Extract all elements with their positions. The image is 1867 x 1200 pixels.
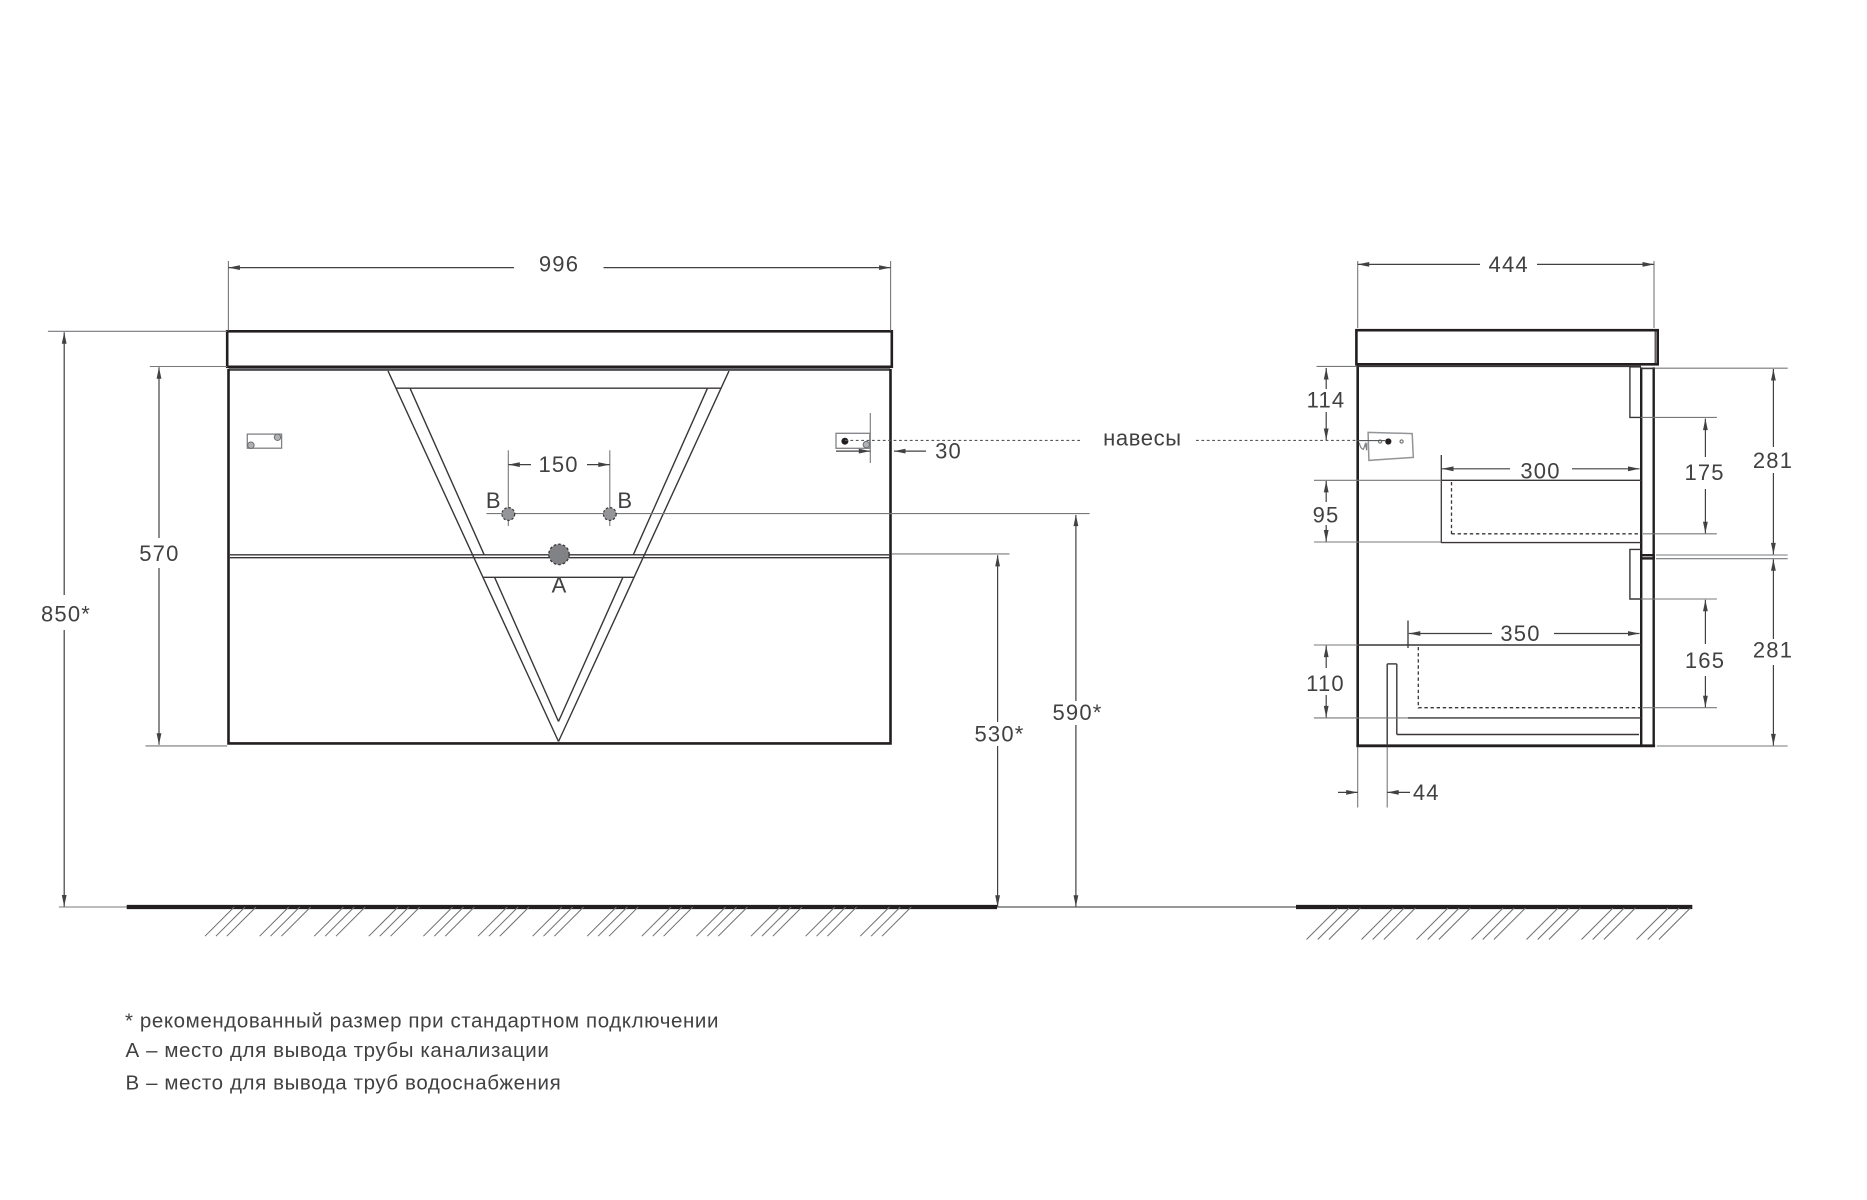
svg-text:150: 150 xyxy=(538,452,578,477)
svg-text:44: 44 xyxy=(1413,780,1440,805)
svg-text:* рекомендованный размер при с: * рекомендованный размер при стандартном… xyxy=(125,1010,719,1033)
svg-text:А – место для вывода трубы кан: А – место для вывода трубы канализации xyxy=(126,1039,550,1062)
svg-text:570: 570 xyxy=(139,541,179,566)
svg-text:175: 175 xyxy=(1684,460,1724,485)
svg-text:350: 350 xyxy=(1500,621,1540,646)
svg-text:В – место для вывода труб водо: В – место для вывода труб водоснабжения xyxy=(126,1072,562,1095)
svg-text:110: 110 xyxy=(1306,671,1345,696)
svg-text:281: 281 xyxy=(1753,638,1793,663)
svg-text:444: 444 xyxy=(1489,252,1529,277)
svg-text:590*: 590* xyxy=(1052,700,1102,725)
svg-text:95: 95 xyxy=(1313,503,1340,528)
svg-text:B: B xyxy=(486,488,502,513)
svg-text:B: B xyxy=(617,488,633,513)
svg-text:281: 281 xyxy=(1753,448,1793,473)
svg-text:850*: 850* xyxy=(41,602,91,627)
svg-text:114: 114 xyxy=(1307,388,1346,413)
svg-text:30: 30 xyxy=(935,439,962,464)
svg-text:300: 300 xyxy=(1520,459,1560,484)
svg-text:165: 165 xyxy=(1685,648,1725,673)
svg-text:996: 996 xyxy=(539,252,579,277)
svg-text:530*: 530* xyxy=(974,721,1024,746)
svg-text:навесы: навесы xyxy=(1103,426,1181,451)
svg-text:A: A xyxy=(552,573,568,598)
